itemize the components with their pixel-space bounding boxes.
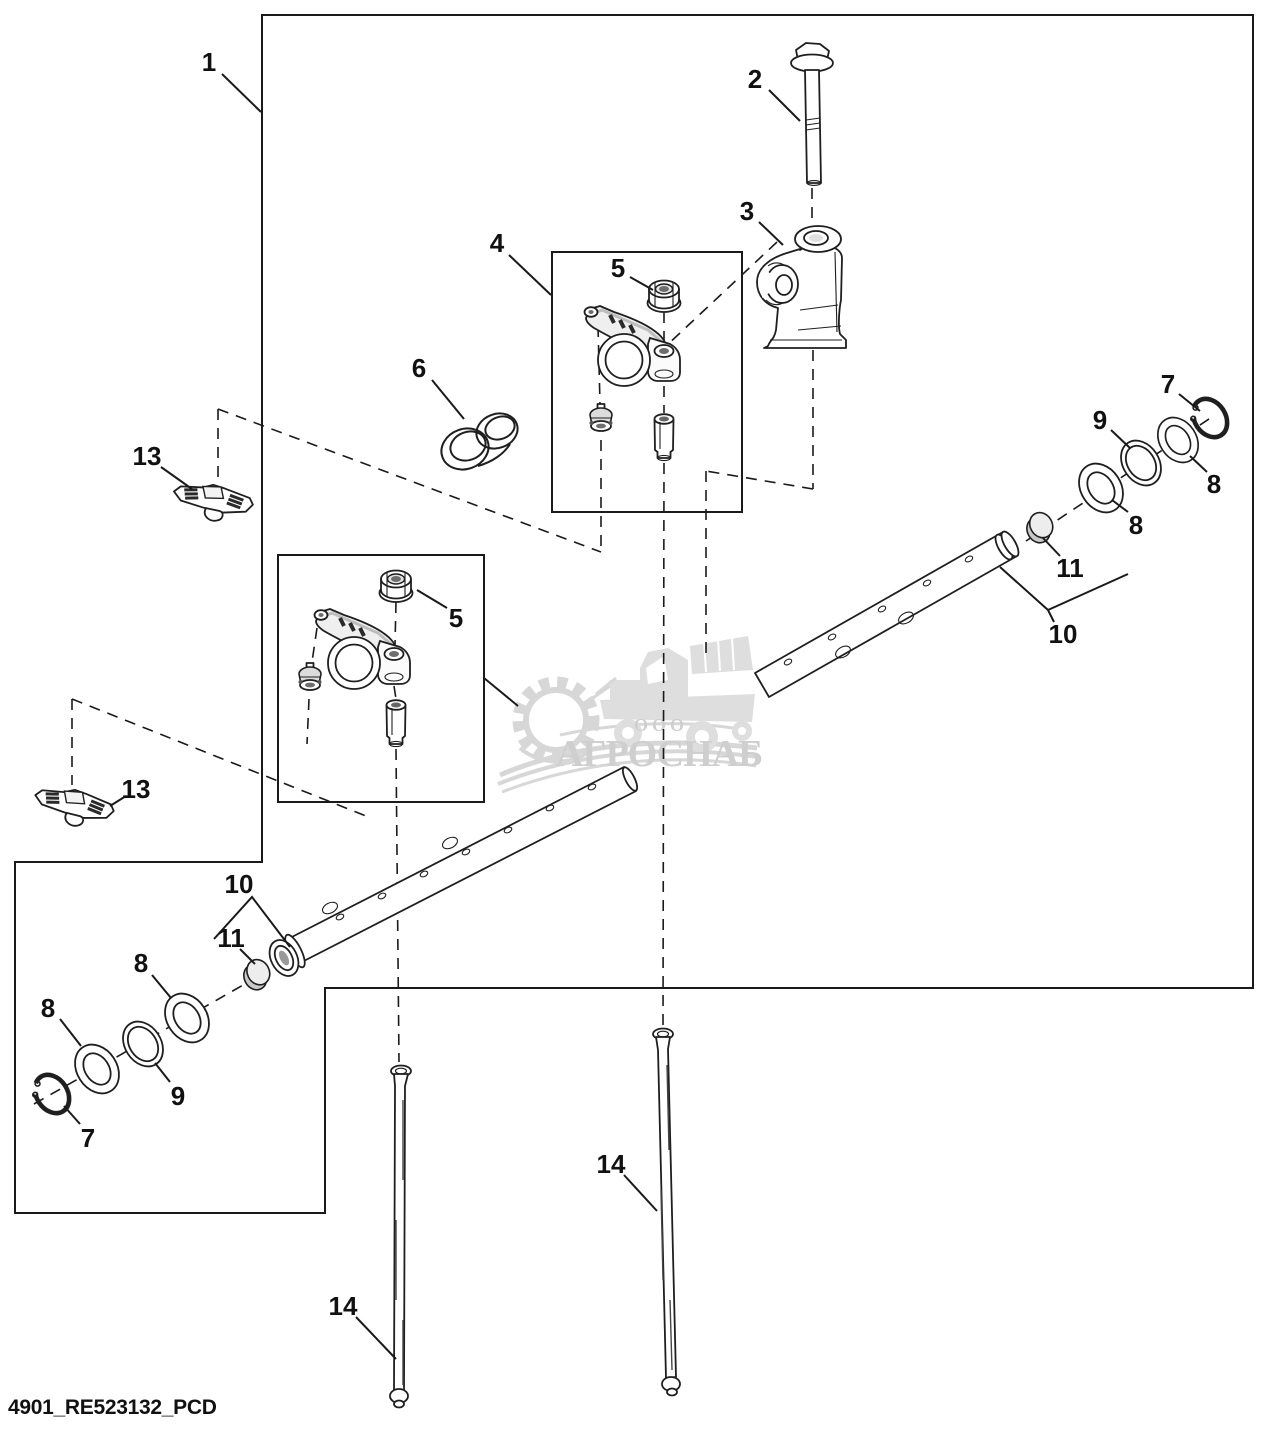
spacer-cylinder [387,700,406,746]
parts-diagram-canvas: ООО АГРОСНАБ [0,0,1270,1430]
callout-3: 3 [740,196,754,226]
callout-6: 6 [412,353,426,383]
coil-spring [436,408,523,476]
callout-8a: 8 [1207,469,1221,499]
valve-stem-cap-upper [171,480,255,526]
callout-8d: 8 [41,993,55,1023]
thrust-washer [156,985,218,1050]
lock-nut [648,281,681,313]
rocker-support-bracket [757,226,846,348]
callout-5a: 5 [611,253,625,283]
adjusting-screw-foot [590,404,613,431]
callout-9b: 9 [171,1081,185,1111]
spacer-cylinder [655,414,674,460]
callout-13a: 13 [133,441,162,471]
callout-9a: 9 [1093,405,1107,435]
callout-14a: 14 [329,1291,358,1321]
callout-4: 4 [490,228,505,258]
callout-10a: 10 [1049,619,1078,649]
push-rod-right [653,1029,680,1396]
wave-washer [115,1014,171,1074]
shaft-plug-left [238,956,275,994]
callout-2: 2 [748,64,762,94]
watermark-logo: ООО АГРОСНАБ [498,636,762,792]
callout-10b: 10 [225,869,254,899]
callout-7b: 7 [81,1123,95,1153]
callout-1: 1 [202,47,216,77]
callout-8b: 8 [1129,510,1143,540]
adjusting-screw-foot [299,663,322,690]
callout-13b: 13 [122,774,151,804]
watermark-name: АГРОСНАБ [556,733,762,775]
callout-5b: 5 [449,603,463,633]
callout-8c: 8 [134,948,148,978]
callout-11a: 11 [1056,553,1084,583]
lock-nut [380,571,413,603]
rocker-shaft-right [755,529,1022,697]
footer-part-code: 4901_RE523132_PCD [8,1396,217,1419]
watermark-org-form: ООО [634,715,688,735]
valve-stem-cap-lower [31,783,116,832]
flange-bolt [791,43,833,185]
thrust-washer [66,1036,128,1101]
callout-11b: 11 [217,923,245,953]
callout-7a: 7 [1161,369,1175,399]
rocker-arm-assembly-2 [299,571,413,747]
callout-14b: 14 [597,1149,626,1179]
